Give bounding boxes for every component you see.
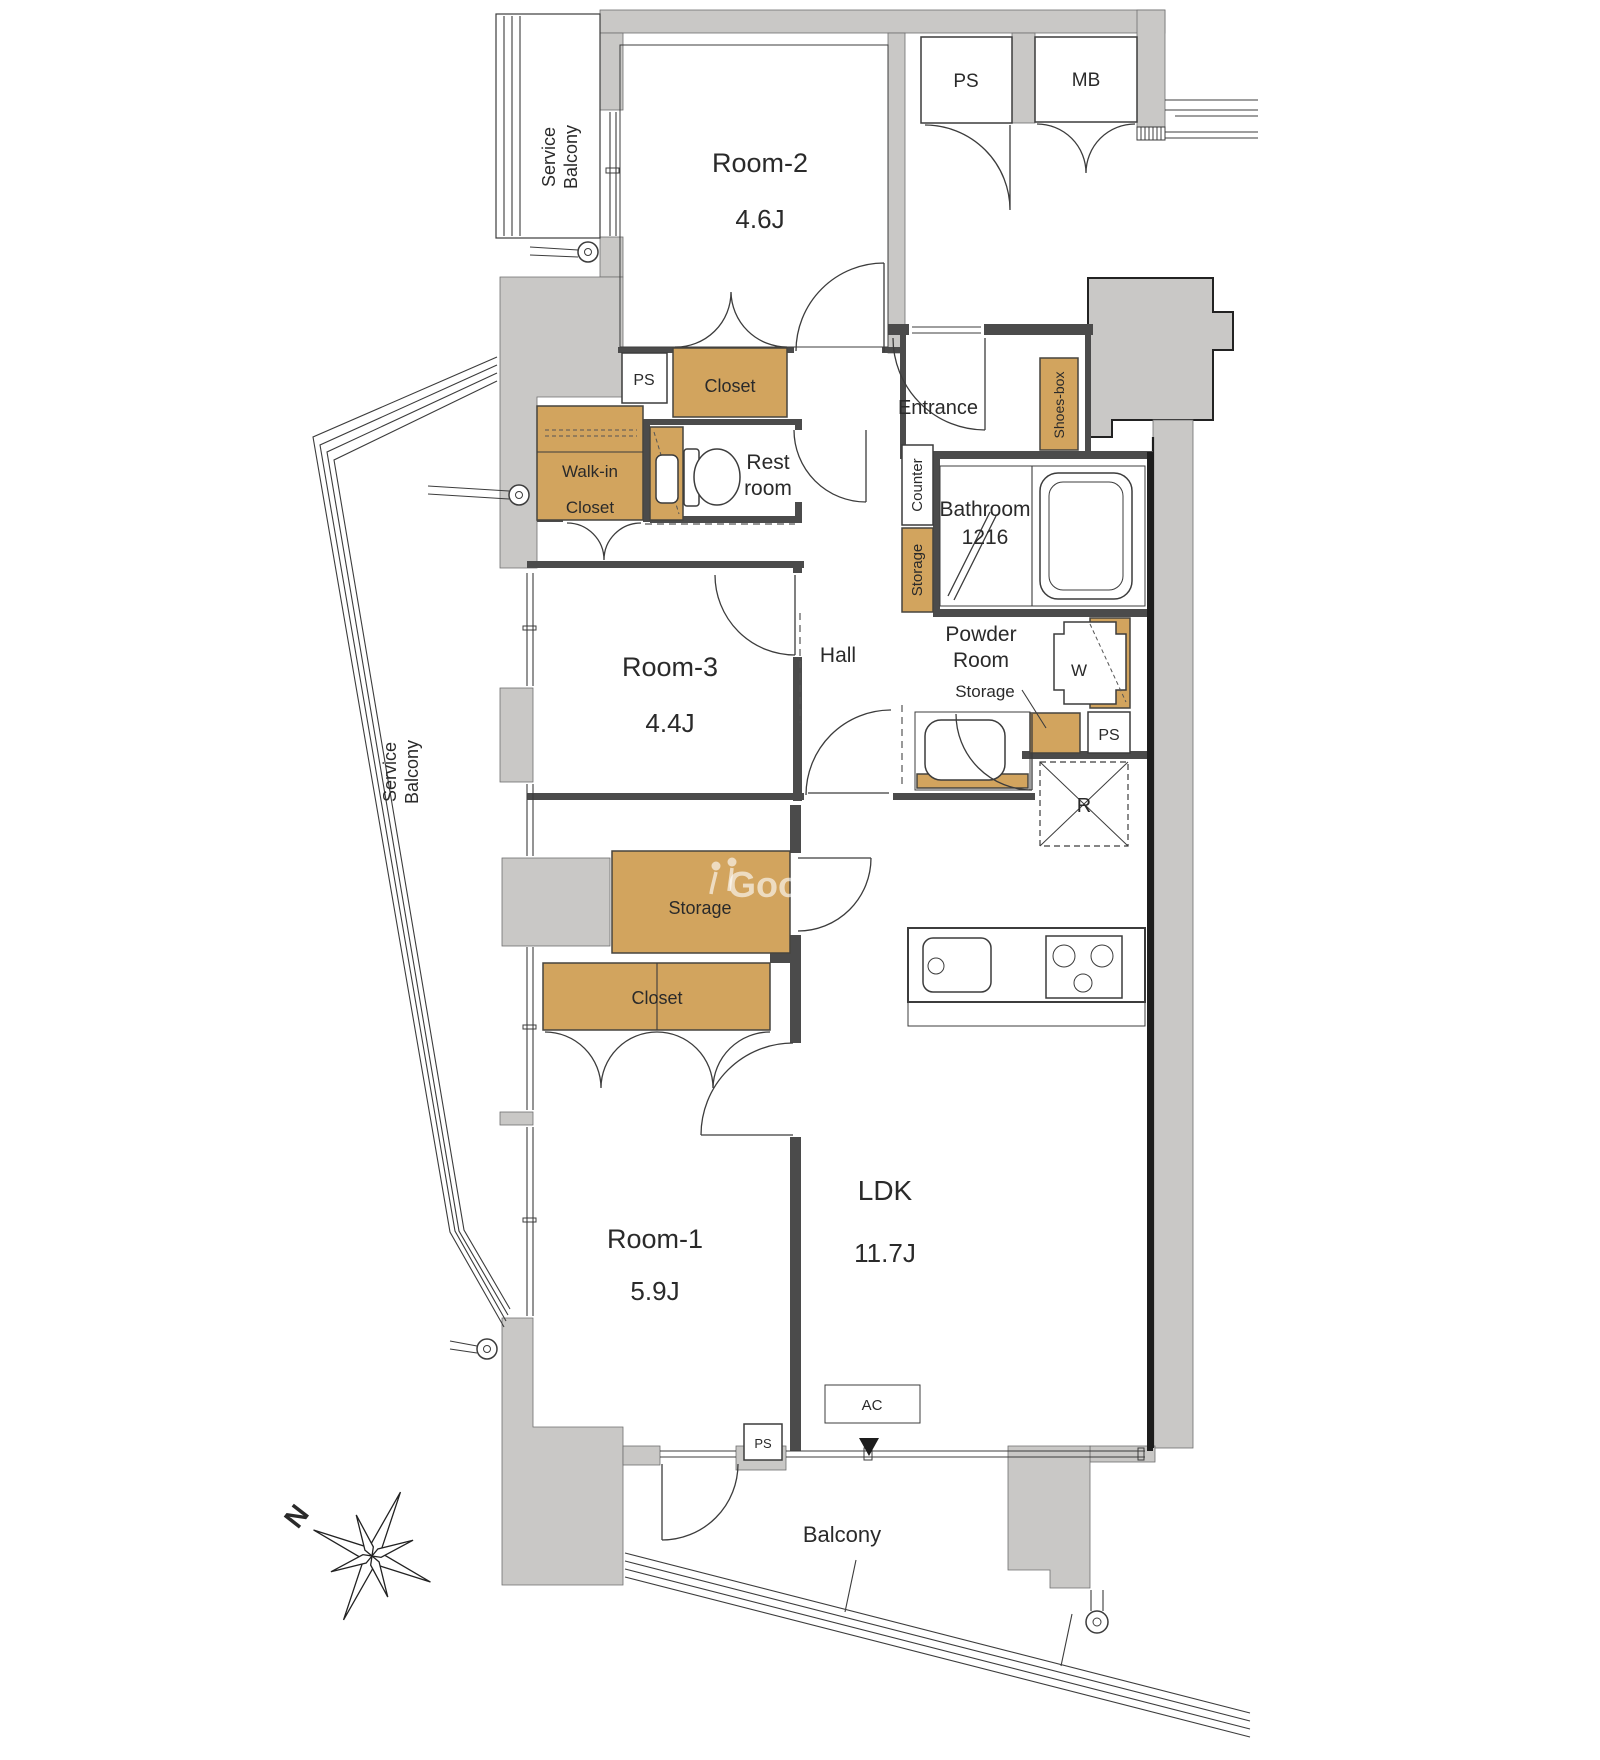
kitchen-icon [908, 928, 1145, 1026]
bathroom-name: Bathroom [939, 498, 1030, 521]
closet-room2-label: Closet [704, 376, 755, 396]
entry-direction-icon [859, 1438, 879, 1456]
storage-mid-label: Storage [668, 898, 731, 918]
room1-name: Room-1 [607, 1224, 703, 1254]
floorplan-page: N Goo Service Balcony Service Balcony Ro… [0, 0, 1600, 1760]
ps-powder-label: PS [1098, 727, 1119, 744]
wall-common-duct [1088, 278, 1233, 437]
closet-room2-doors [675, 292, 787, 347]
mb-doors [1037, 124, 1135, 173]
toilet-icon [684, 449, 740, 506]
room2-area: 4.6J [735, 204, 784, 234]
kitchen-stove [1046, 936, 1122, 998]
do​ors [545, 124, 1135, 1540]
powder-line1: Powder [945, 623, 1016, 646]
wall-top-band [600, 10, 1165, 33]
storage-powder-label: Storage [955, 682, 1015, 701]
hall-ldk-door [806, 710, 891, 795]
restroom-line2: room [744, 477, 792, 500]
compass: N [278, 1466, 459, 1646]
counter-label: Counter [909, 458, 926, 511]
floorplan-canvas: N Goo Service Balcony Service Balcony Ro… [0, 0, 1600, 1760]
balcony-label: Balcony [803, 1522, 881, 1547]
washer-label: W [1071, 661, 1087, 680]
fridge-label: R [1077, 795, 1091, 817]
room2-door [796, 263, 884, 352]
ps-top-door [925, 125, 1010, 210]
walkin-line2: Closet [566, 498, 614, 517]
storage-powder-box [1030, 713, 1080, 753]
room1-door [701, 1043, 793, 1135]
labels: Service Balcony Service Balcony Room-2 4… [380, 70, 1120, 1547]
powder-line2: Room [953, 649, 1009, 672]
service-balcony-left-line1: Service [380, 742, 400, 802]
wall-unit-right-black [1147, 452, 1153, 1451]
wall-bottom-right-corner [1090, 1446, 1155, 1462]
service-balcony-top-line2: Balcony [561, 125, 581, 189]
ps-top-label: PS [953, 71, 978, 92]
storage-mid-door [798, 858, 871, 931]
closet-room1-label: Closet [631, 988, 682, 1008]
wall-bottom-right-chunk [1008, 1446, 1090, 1588]
service-balcony-top-line1: Service [539, 127, 559, 187]
bottom-balcony-rails [625, 1553, 1250, 1737]
north-label: N [278, 1499, 315, 1534]
closet-room1-doors-left [545, 1032, 657, 1088]
mb-label: MB [1072, 70, 1101, 91]
restroom-door [794, 430, 866, 502]
wall-ps-mb-pillar [1012, 33, 1035, 123]
bathroom-size: 1216 [962, 526, 1009, 549]
wall-left-pier-b [500, 1112, 533, 1125]
hall-label: Hall [820, 644, 856, 667]
ps-hall-label: PS [633, 372, 654, 389]
left-balcony-rails [313, 357, 510, 1327]
shoes-box-label: Shoes-box [1051, 372, 1067, 439]
service-balcony-left-line2: Balcony [402, 740, 422, 804]
walkin-line1: Walk-in [562, 462, 618, 481]
balcony-door-room1 [662, 1464, 738, 1540]
wall-mid-chunk [502, 858, 610, 946]
wall-room2-right [888, 33, 905, 353]
washer-icon [1054, 622, 1126, 704]
walkin-doors [567, 523, 641, 560]
storage-hall-label: Storage [909, 544, 926, 597]
corridor-lines [1165, 100, 1258, 138]
watermark-text: Goo [728, 864, 800, 905]
room2-name: Room-2 [712, 148, 808, 178]
room1-area: 5.9J [630, 1276, 679, 1306]
bathtub-icon [1032, 466, 1132, 606]
hatch-strip [1137, 127, 1165, 140]
wall-top-right [1137, 10, 1165, 127]
ps-bottom-label: PS [754, 1436, 772, 1451]
restroom-basin [656, 455, 678, 503]
room3-area: 4.4J [645, 708, 694, 738]
ac-label: AC [862, 1397, 883, 1414]
room3-name: Room-3 [622, 652, 718, 682]
wall-bottom-left-chunk [502, 1318, 623, 1585]
entrance-label: Entrance [898, 397, 978, 419]
wall-bottom-seg [623, 1446, 660, 1465]
wall-left-pier-a [500, 688, 533, 782]
restroom-line1: Rest [746, 451, 789, 474]
wall-right-band [1153, 420, 1193, 1448]
ldk-area: 11.7J [854, 1238, 916, 1268]
kitchen-sink [923, 938, 991, 992]
room2-outline [620, 45, 888, 347]
room3-door [715, 575, 795, 655]
ldk-name: LDK [858, 1175, 913, 1206]
closet-room1-doors-right [657, 1032, 770, 1088]
